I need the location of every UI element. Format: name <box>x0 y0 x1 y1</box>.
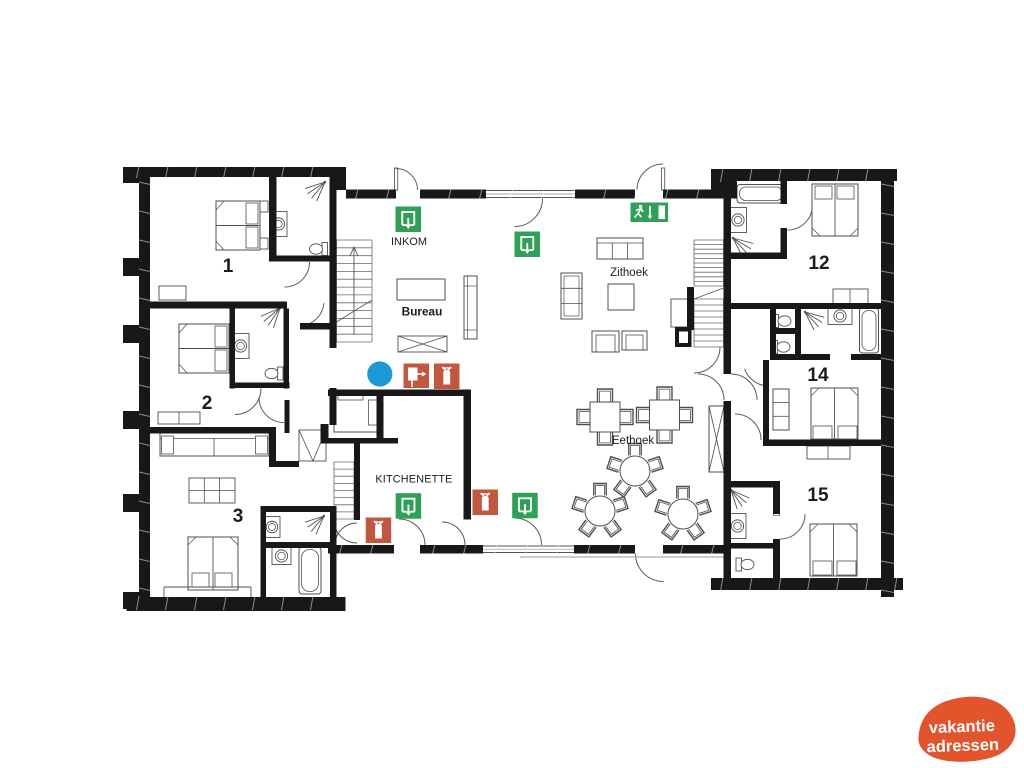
svg-text:vakantie: vakantie <box>929 717 996 737</box>
svg-text:1: 1 <box>223 256 234 277</box>
svg-text:Zithoek: Zithoek <box>610 267 648 279</box>
svg-text:2: 2 <box>202 393 213 414</box>
svg-text:15: 15 <box>807 485 829 506</box>
svg-text:14: 14 <box>807 365 829 386</box>
svg-text:INKOM: INKOM <box>391 236 427 248</box>
svg-text:12: 12 <box>808 253 829 274</box>
svg-text:KITCHENETTE: KITCHENETTE <box>375 474 452 486</box>
svg-text:3: 3 <box>233 506 244 527</box>
svg-text:Eethoek: Eethoek <box>612 435 654 447</box>
svg-text:adressen: adressen <box>926 736 999 757</box>
svg-text:Bureau: Bureau <box>402 305 443 319</box>
